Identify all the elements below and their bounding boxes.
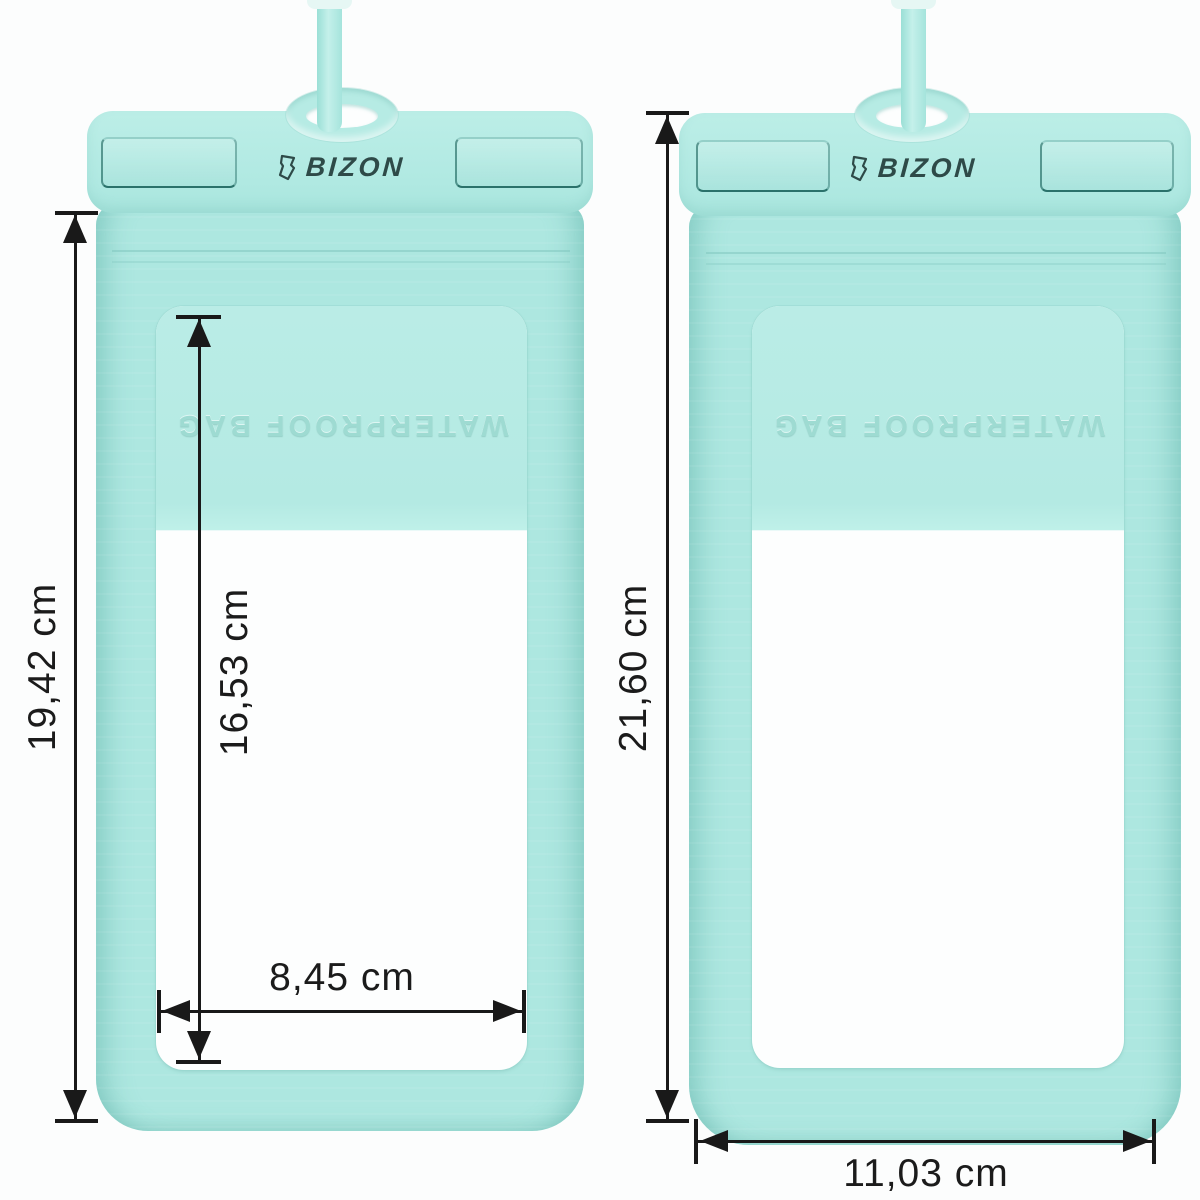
clip-slot-left-inner (455, 137, 583, 188)
arrowhead-up (655, 116, 679, 144)
dimension-line (160, 1010, 524, 1013)
strap-cap-right (891, 0, 936, 9)
dimension-tick (157, 990, 161, 1033)
embossed-text-right: WATERPROOF BAG (752, 408, 1124, 441)
brand-logo-text: BIZON (877, 153, 978, 184)
clip-slot-right-inner (1040, 140, 1174, 192)
strap-cap-left (307, 0, 352, 9)
waterproof-bag-dimension-diagram: WATERPROOF BAG BIZON WATERPROOF BAG BIZO… (0, 0, 1200, 1200)
arrowhead-up (187, 319, 211, 347)
dimension-tick (1152, 1119, 1156, 1164)
brand-logo-text: BIZON (305, 152, 406, 183)
dimension-value: 11,03 cm (843, 1152, 1009, 1196)
arrowhead-left (700, 1130, 728, 1152)
zip-seal-left (112, 250, 570, 263)
strap-eyelet-left (286, 88, 398, 142)
dimension-tick (55, 1119, 98, 1123)
clip-slot-left-outer (101, 137, 237, 188)
zip-seal-right (706, 252, 1166, 265)
dimension-line (666, 115, 669, 1119)
dimension-tick (522, 990, 526, 1033)
brand-logo-right: BIZON (812, 147, 1012, 189)
embossed-text-left: WATERPROOF BAG (156, 408, 527, 441)
dimension-tick (694, 1119, 698, 1164)
arrowhead-left (162, 1000, 190, 1022)
dimension-tick (646, 111, 689, 115)
clip-slot-right-outer (696, 140, 830, 192)
bizon-logo-icon (275, 152, 299, 182)
arrowhead-down (655, 1090, 679, 1118)
window-film-right: WATERPROOF BAG (752, 306, 1124, 531)
bizon-logo-icon (847, 153, 871, 183)
dimension-value: 19,42 cm (21, 583, 65, 751)
dimension-value: 21,60 cm (612, 584, 656, 752)
brand-logo-left: BIZON (240, 146, 440, 188)
lanyard-strap-left (317, 0, 342, 132)
dimension-line (74, 214, 77, 1120)
arrowhead-down (63, 1090, 87, 1118)
arrowhead-up (63, 215, 87, 243)
arrowhead-right (1123, 1130, 1151, 1152)
dimension-tick (176, 1060, 221, 1064)
arrowhead-right (493, 1000, 521, 1022)
dimension-value: 16,53 cm (213, 588, 257, 756)
dimension-tick (646, 1119, 689, 1123)
arrowhead-down (187, 1031, 211, 1059)
dimension-line (698, 1140, 1154, 1143)
window-film-left: WATERPROOF BAG (156, 306, 527, 531)
dimension-line (198, 318, 201, 1062)
phone-window-right: WATERPROOF BAG (752, 306, 1124, 1068)
dimension-value: 8,45 cm (269, 956, 415, 1000)
lanyard-strap-right (901, 0, 926, 132)
